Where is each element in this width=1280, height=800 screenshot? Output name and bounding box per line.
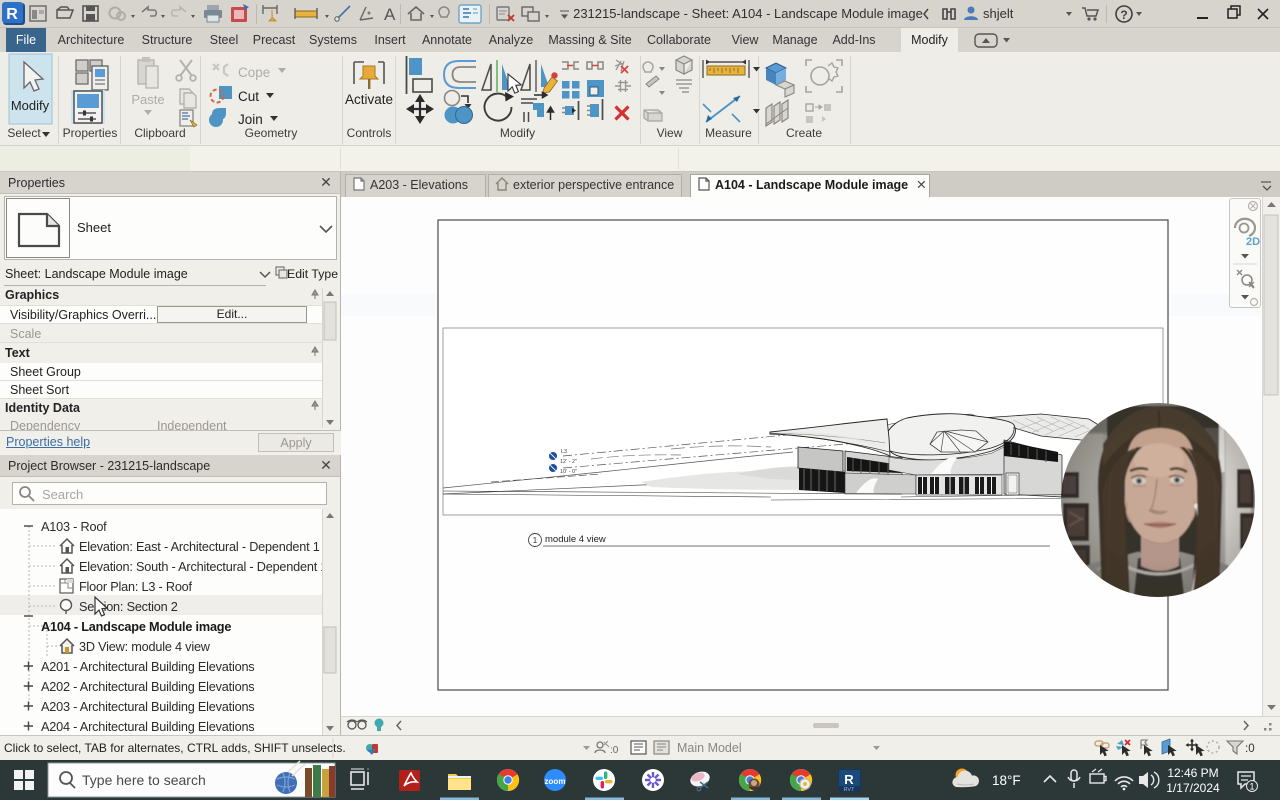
svg-text::0: :0	[1245, 743, 1255, 755]
svg-text:1: 1	[1249, 782, 1254, 792]
svg-text:A: A	[384, 5, 396, 24]
svg-text:Main Model: Main Model	[677, 741, 742, 755]
svg-text:zoom: zoom	[545, 777, 566, 786]
svg-text:Activate: Activate	[345, 92, 393, 107]
svg-text:R: R	[6, 6, 18, 23]
svg-text:3D View: module 4 view: 3D View: module 4 view	[79, 640, 211, 654]
svg-text:12' - 2": 12' - 2"	[560, 459, 577, 465]
svg-text:231215-landscape - Sheet: A104: 231215-landscape - Sheet: A104 - Landsca…	[573, 6, 923, 21]
svg-text:R: R	[844, 772, 854, 787]
svg-text:10' - 0": 10' - 0"	[560, 469, 577, 475]
svg-text:L3: L3	[561, 449, 567, 455]
svg-text:A103 - Roof: A103 - Roof	[41, 520, 107, 534]
svg-text:Floor Plan: L3 - Roof: Floor Plan: L3 - Roof	[79, 580, 193, 594]
svg-text:Elevation: East - Architectura: Elevation: East - Architectural - Depend…	[79, 540, 320, 554]
svg-text:Join: Join	[238, 112, 263, 127]
svg-text:A104 - Landscape Module image: A104 - Landscape Module image	[41, 620, 231, 634]
svg-text:Elevation: South - Architectur: Elevation: South - Architectural - Depen…	[79, 560, 322, 574]
svg-text:1/17/2024: 1/17/2024	[1166, 781, 1220, 795]
svg-text:Section: Section 2: Section: Section 2	[79, 600, 178, 614]
svg-text::0: :0	[610, 745, 619, 756]
svg-text:A202 - Architectural Building: A202 - Architectural Building Elevations	[41, 680, 254, 694]
svg-text:shjelt: shjelt	[983, 6, 1014, 21]
svg-text:A203 - Architectural Building: A203 - Architectural Building Elevations	[41, 700, 254, 714]
svg-text:RVT: RVT	[844, 787, 856, 793]
svg-text:A204 - Architectural Building: A204 - Architectural Building Elevations	[41, 720, 254, 734]
svg-text:?: ?	[1120, 8, 1127, 22]
svg-text:A201 - Architectural Building: A201 - Architectural Building Elevations	[41, 660, 254, 674]
svg-text:2D: 2D	[1246, 236, 1260, 248]
svg-text:12:46 PM: 12:46 PM	[1167, 766, 1218, 780]
svg-text:Cut: Cut	[238, 89, 259, 104]
svg-text:Modify: Modify	[11, 98, 50, 113]
svg-text:Type here to search: Type here to search	[82, 772, 206, 788]
svg-text:Paste: Paste	[131, 92, 164, 107]
svg-text:1: 1	[533, 536, 538, 545]
svg-text:module 4 view: module 4 view	[545, 534, 606, 545]
svg-text:Cope: Cope	[238, 65, 270, 80]
svg-text:18°F: 18°F	[992, 773, 1021, 788]
